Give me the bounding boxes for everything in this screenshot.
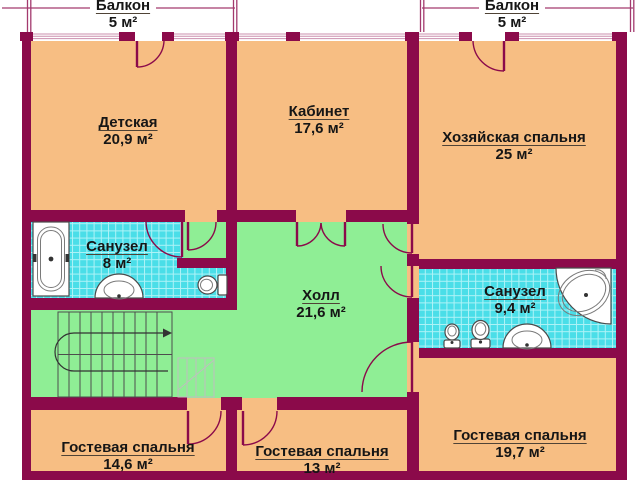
guest-left-name: Гостевая спальня xyxy=(28,439,228,456)
office-name: Кабинет xyxy=(239,103,399,120)
railing-left-2 xyxy=(234,0,237,32)
window-band xyxy=(22,32,627,41)
office-area: 17,6 м² xyxy=(239,120,399,137)
balcony-right-area: 5 м² xyxy=(498,14,527,31)
guest-right-name: Гостевая спальня xyxy=(420,427,620,444)
wall-exterior-right xyxy=(616,32,627,480)
room-label-bathroom-right: Санузел 9,4 м² xyxy=(435,283,595,317)
wall-bath-guest xyxy=(419,348,616,358)
railing-right-1 xyxy=(421,0,424,32)
bathroom-left-area: 8 м² xyxy=(57,255,177,272)
floor-plan: Балкон 5 м² Балкон 5 м² Детская 20,9 м² … xyxy=(0,0,640,480)
bathroom-right-name: Санузел xyxy=(435,283,595,300)
guest-middle-area: 13 м² xyxy=(222,460,422,477)
master-bedroom-area: 25 м² xyxy=(414,146,614,163)
hall-area: 21,6 м² xyxy=(241,304,401,321)
room-label-master-bedroom: Хозяйская спальня 25 м² xyxy=(414,129,614,163)
wall-vertical-right-b xyxy=(407,254,419,266)
wall-vertical-left xyxy=(226,38,237,310)
bathtub-grip-left xyxy=(33,254,37,262)
room-label-guest-middle: Гостевая спальня 13 м² xyxy=(222,443,422,477)
guest-middle-name: Гостевая спальня xyxy=(222,443,422,460)
wall-office-hall-left xyxy=(237,210,296,222)
nursery-area: 20,9 м² xyxy=(48,131,208,148)
nursery-name: Детская xyxy=(48,114,208,131)
wall-alcove-nook xyxy=(177,258,226,268)
balcony-left-name: Балкон xyxy=(96,0,150,14)
balcony-left-area: 5 м² xyxy=(109,14,138,31)
room-label-hall: Холл 21,6 м² xyxy=(241,287,401,321)
room-label-office: Кабинет 17,6 м² xyxy=(239,103,399,137)
bathroom-left-name: Санузел xyxy=(57,238,177,255)
room-label-guest-left: Гостевая спальня 14,6 м² xyxy=(28,439,228,473)
railing-right-2 xyxy=(631,0,634,32)
bathtub-drain xyxy=(49,257,54,262)
wall-hall-bottom-b xyxy=(221,397,242,410)
master-bedroom-name: Хозяйская спальня xyxy=(414,129,614,146)
guest-left-area: 14,6 м² xyxy=(28,456,228,473)
room-label-bathroom-left: Санузел 8 м² xyxy=(57,238,177,272)
room-label-nursery: Детская 20,9 м² xyxy=(48,114,208,148)
room-label-guest-right: Гостевая спальня 19,7 м² xyxy=(420,427,620,461)
bathroom-right-area: 9,4 м² xyxy=(435,300,595,317)
balcony-right-name: Балкон xyxy=(485,0,539,14)
bidet-right xyxy=(444,324,460,348)
hall-name: Холл xyxy=(241,287,401,304)
wall-bath-stairs xyxy=(22,298,237,310)
room-label-balcony-right: Балкон 5 м² xyxy=(432,0,592,31)
toilet-right xyxy=(471,321,490,349)
wall-office-hall-right xyxy=(346,210,407,222)
wall-hall-bottom-a xyxy=(22,397,187,410)
wall-vertical-right-c xyxy=(407,298,419,342)
wall-hall-bottom-c xyxy=(277,397,419,410)
alcove-fill xyxy=(183,222,226,262)
railing-left-1 xyxy=(28,0,31,32)
guest-right-area: 19,7 м² xyxy=(420,444,620,461)
room-label-balcony-left: Балкон 5 м² xyxy=(43,0,203,31)
wall-nursery-bath xyxy=(22,210,185,222)
wall-exterior-left xyxy=(22,32,31,480)
toilet-left xyxy=(198,275,227,295)
